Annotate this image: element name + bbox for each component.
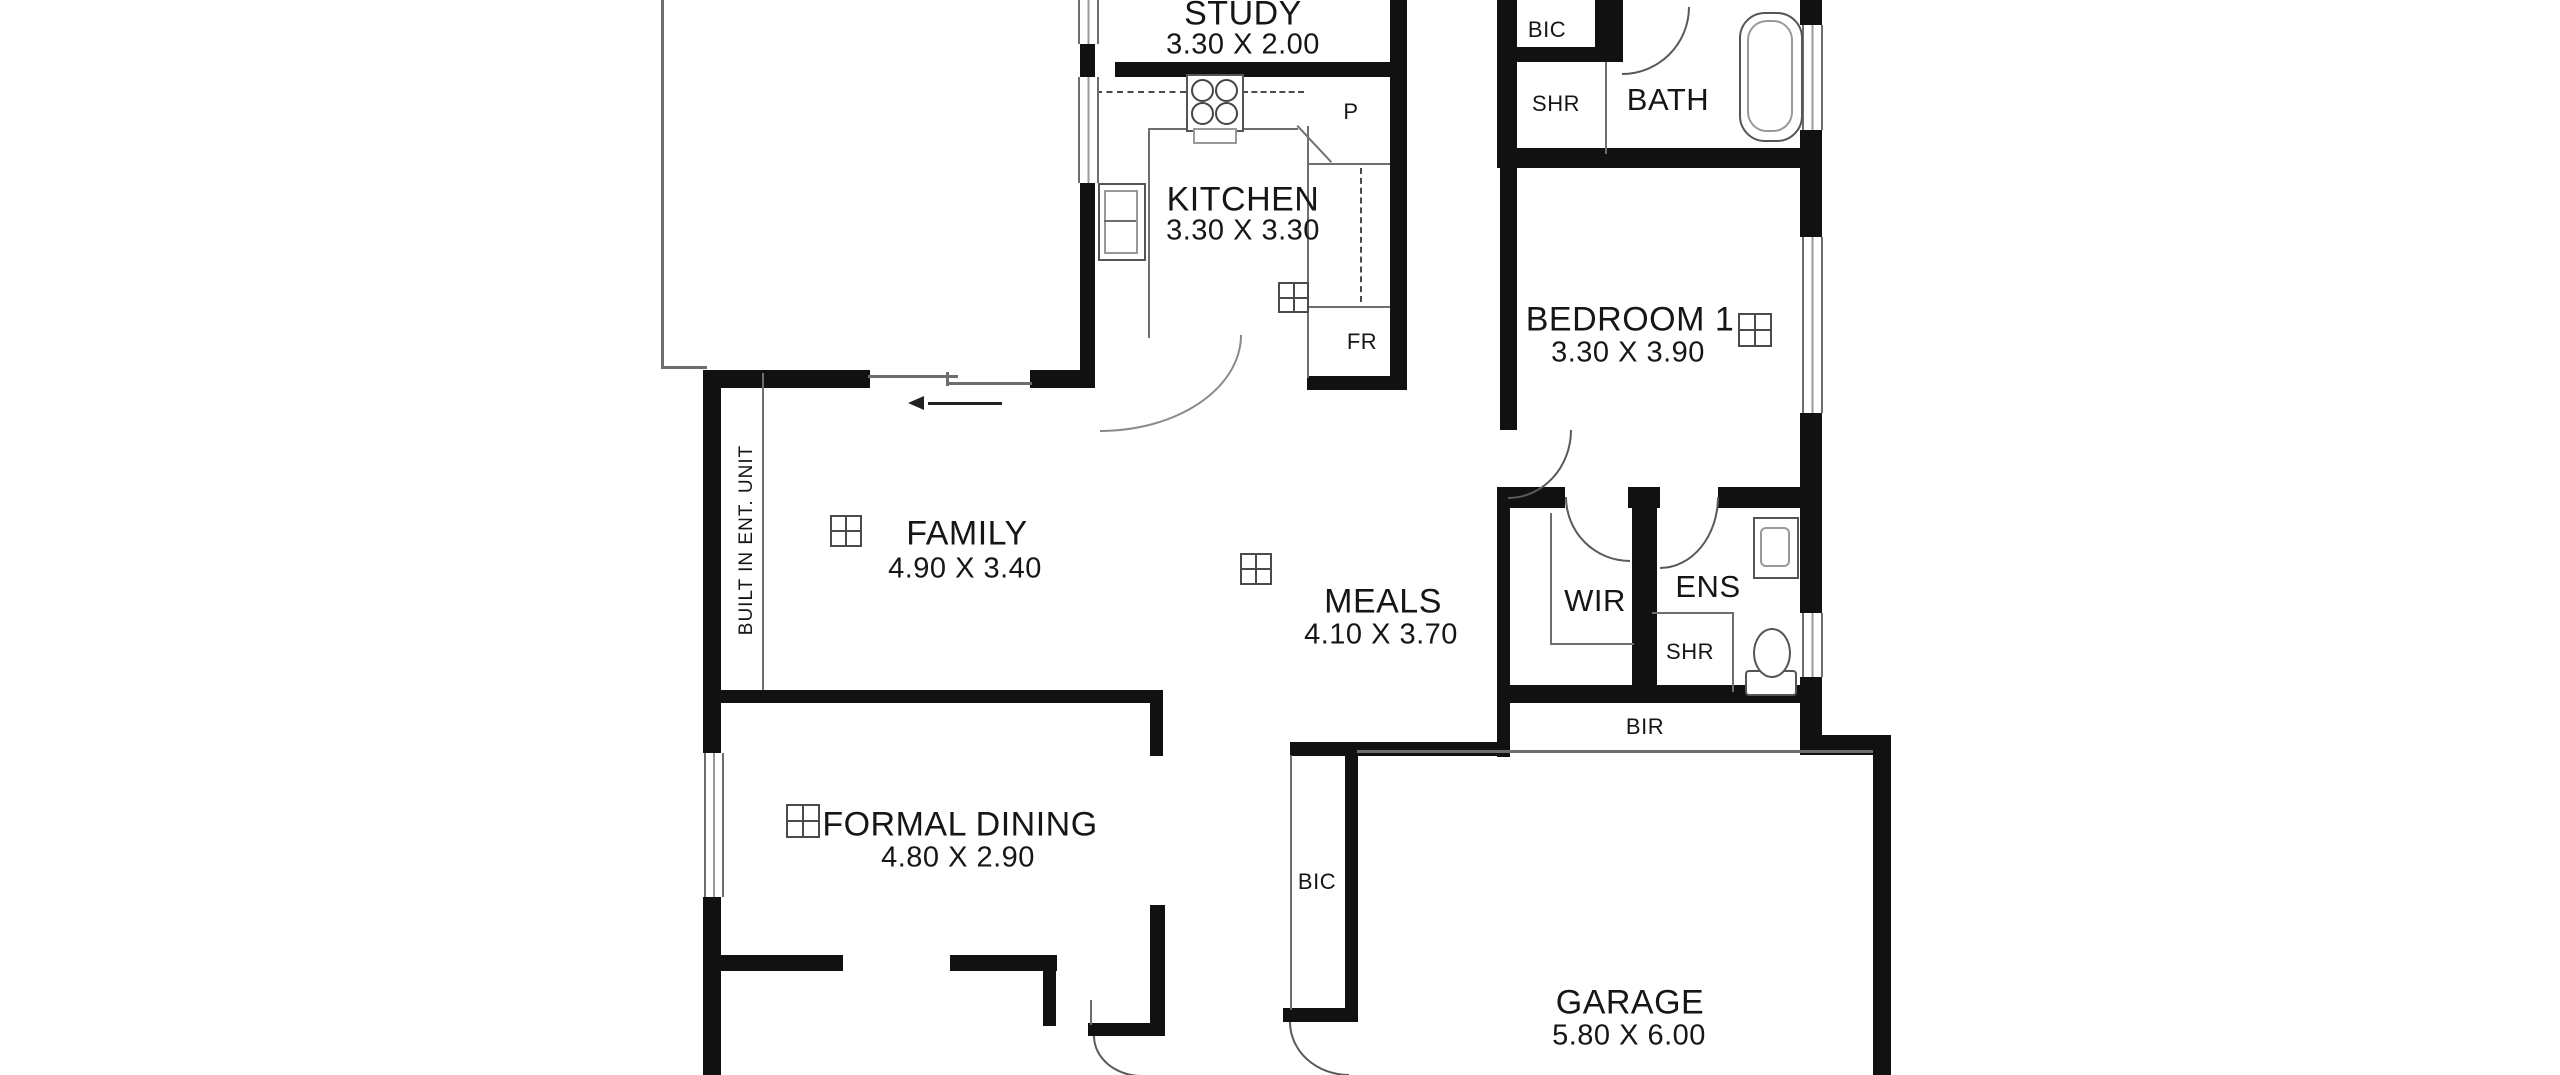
room-label-bath: BATH bbox=[1627, 82, 1709, 118]
cooktop-tray bbox=[1193, 128, 1237, 144]
room-label-garage: GARAGE bbox=[1556, 984, 1704, 1023]
sliding-door-rail bbox=[868, 375, 958, 378]
cooktop-burner bbox=[1215, 79, 1238, 102]
room-dims-study: 3.30 X 2.00 bbox=[1166, 29, 1320, 62]
wall-segment bbox=[1800, 0, 1822, 25]
wall-segment bbox=[1115, 62, 1405, 77]
door-swing-arc bbox=[1660, 497, 1719, 569]
door-swing-arc bbox=[1289, 1022, 1349, 1075]
partition-line bbox=[1090, 1000, 1092, 1025]
wall-segment bbox=[1088, 1023, 1165, 1036]
room-dims-family: 4.90 X 3.40 bbox=[888, 553, 1042, 586]
room-label-formal-dining: FORMAL DINING bbox=[822, 806, 1097, 845]
wall-segment bbox=[703, 690, 1163, 703]
wall-segment bbox=[1080, 40, 1095, 77]
shower-line bbox=[1652, 612, 1734, 614]
bathtub-symbol-inner bbox=[1747, 20, 1793, 132]
partition-line bbox=[661, 0, 664, 368]
shower-line bbox=[1732, 612, 1734, 692]
ceiling-vent-icon bbox=[786, 804, 820, 838]
door-direction-arrow-head bbox=[908, 396, 924, 410]
wall-segment bbox=[703, 897, 721, 1075]
room-label-bedroom1: BEDROOM 1 bbox=[1526, 301, 1735, 340]
wall-segment bbox=[1390, 0, 1407, 390]
wall-segment bbox=[1080, 183, 1095, 373]
sliding-door-rail bbox=[946, 372, 949, 386]
fixture-label-pantry: P bbox=[1343, 99, 1358, 125]
wall-segment bbox=[1595, 0, 1623, 62]
robe-shelf-line bbox=[1550, 643, 1634, 645]
partition-line bbox=[661, 366, 707, 369]
room-dims-bedroom1: 3.30 X 3.90 bbox=[1551, 337, 1705, 370]
fixture-label-fridge: FR bbox=[1347, 329, 1377, 355]
pantry-line bbox=[1307, 163, 1390, 165]
ceiling-vent-icon bbox=[830, 515, 862, 547]
wall-segment bbox=[703, 370, 870, 388]
room-dims-garage: 5.80 X 6.00 bbox=[1552, 1020, 1706, 1053]
cooktop-burner bbox=[1191, 79, 1214, 102]
fixture-label-bic-bath: BIC bbox=[1528, 17, 1566, 43]
bench-line bbox=[1148, 128, 1150, 338]
room-dims-kitchen: 3.30 X 3.30 bbox=[1166, 215, 1320, 248]
room-dims-formal-dining: 4.80 X 2.90 bbox=[881, 842, 1035, 875]
dashed-overhead-line bbox=[1096, 91, 1186, 93]
room-label-family: FAMILY bbox=[906, 515, 1027, 554]
sliding-door-rail bbox=[948, 382, 1032, 385]
wall-segment bbox=[1345, 755, 1358, 1013]
room-dims-meals: 4.10 X 3.70 bbox=[1304, 619, 1458, 652]
oven-symbol-divider bbox=[1104, 220, 1136, 222]
fixture-label-shr-ens: SHR bbox=[1666, 639, 1714, 665]
door-direction-arrow bbox=[928, 402, 1002, 405]
pantry-line bbox=[1307, 306, 1390, 308]
room-label-meals: MEALS bbox=[1324, 583, 1442, 622]
wall-segment bbox=[1628, 487, 1660, 508]
ceiling-vent-icon bbox=[1738, 313, 1772, 347]
window-marker bbox=[1802, 237, 1823, 413]
vanity-basin-symbol-inner bbox=[1760, 527, 1790, 567]
toilet-symbol-bowl bbox=[1753, 628, 1791, 678]
curved-counter-arc bbox=[1100, 335, 1242, 432]
fixture-label-shr-bath: SHR bbox=[1532, 91, 1580, 117]
window-marker bbox=[1078, 77, 1099, 183]
fixture-label-built-in-ent-unit: BUILT IN ENT. UNIT bbox=[736, 445, 758, 635]
bench-diagonal-line bbox=[1297, 125, 1333, 163]
oven-symbol-inner bbox=[1104, 190, 1138, 254]
wall-segment bbox=[1150, 905, 1165, 1023]
wall-segment bbox=[1800, 130, 1822, 237]
ceiling-vent-icon bbox=[1278, 282, 1309, 313]
partition-line bbox=[1290, 755, 1292, 1010]
wall-segment bbox=[1150, 703, 1163, 756]
fixture-label-bic-entry: BIC bbox=[1298, 869, 1336, 895]
ceiling-vent-icon bbox=[1240, 553, 1272, 585]
partition-line bbox=[762, 373, 764, 690]
robe-shelf-line bbox=[1550, 513, 1552, 645]
wall-segment bbox=[1497, 148, 1822, 168]
wall-segment bbox=[1873, 755, 1891, 1075]
wall-segment bbox=[1043, 971, 1056, 1026]
cooktop-burner bbox=[1191, 102, 1214, 125]
garage-ceiling-line bbox=[1357, 750, 1873, 753]
wall-segment bbox=[1307, 376, 1405, 390]
wall-segment bbox=[713, 955, 843, 971]
dashed-overhead-line bbox=[1360, 168, 1362, 302]
room-label-ens: ENS bbox=[1675, 569, 1740, 605]
cooktop-burner bbox=[1215, 102, 1238, 125]
wall-segment bbox=[1500, 168, 1517, 430]
wall-segment bbox=[1632, 508, 1657, 690]
door-swing-arc bbox=[1565, 497, 1630, 562]
shower-line bbox=[1605, 62, 1607, 154]
room-label-wir: WIR bbox=[1564, 583, 1626, 619]
wall-segment bbox=[1510, 47, 1595, 62]
window-marker bbox=[1078, 0, 1099, 44]
window-marker bbox=[1802, 613, 1823, 677]
door-swing-arc bbox=[1093, 1036, 1142, 1075]
window-marker bbox=[1802, 25, 1823, 130]
door-swing-arc bbox=[1622, 7, 1690, 75]
window-marker bbox=[704, 753, 724, 897]
wall-segment bbox=[1497, 487, 1510, 757]
fixture-label-bir: BIR bbox=[1626, 714, 1664, 740]
wall-segment bbox=[1283, 1008, 1358, 1022]
wall-segment bbox=[1800, 413, 1822, 613]
wall-segment bbox=[1290, 742, 1510, 756]
dashed-overhead-line bbox=[1242, 91, 1304, 93]
wall-segment bbox=[950, 955, 1057, 971]
wall-segment bbox=[1497, 0, 1517, 168]
floor-plan-canvas: STUDY 3.30 X 2.00 KITCHEN 3.30 X 3.30 BA… bbox=[0, 0, 2560, 1075]
